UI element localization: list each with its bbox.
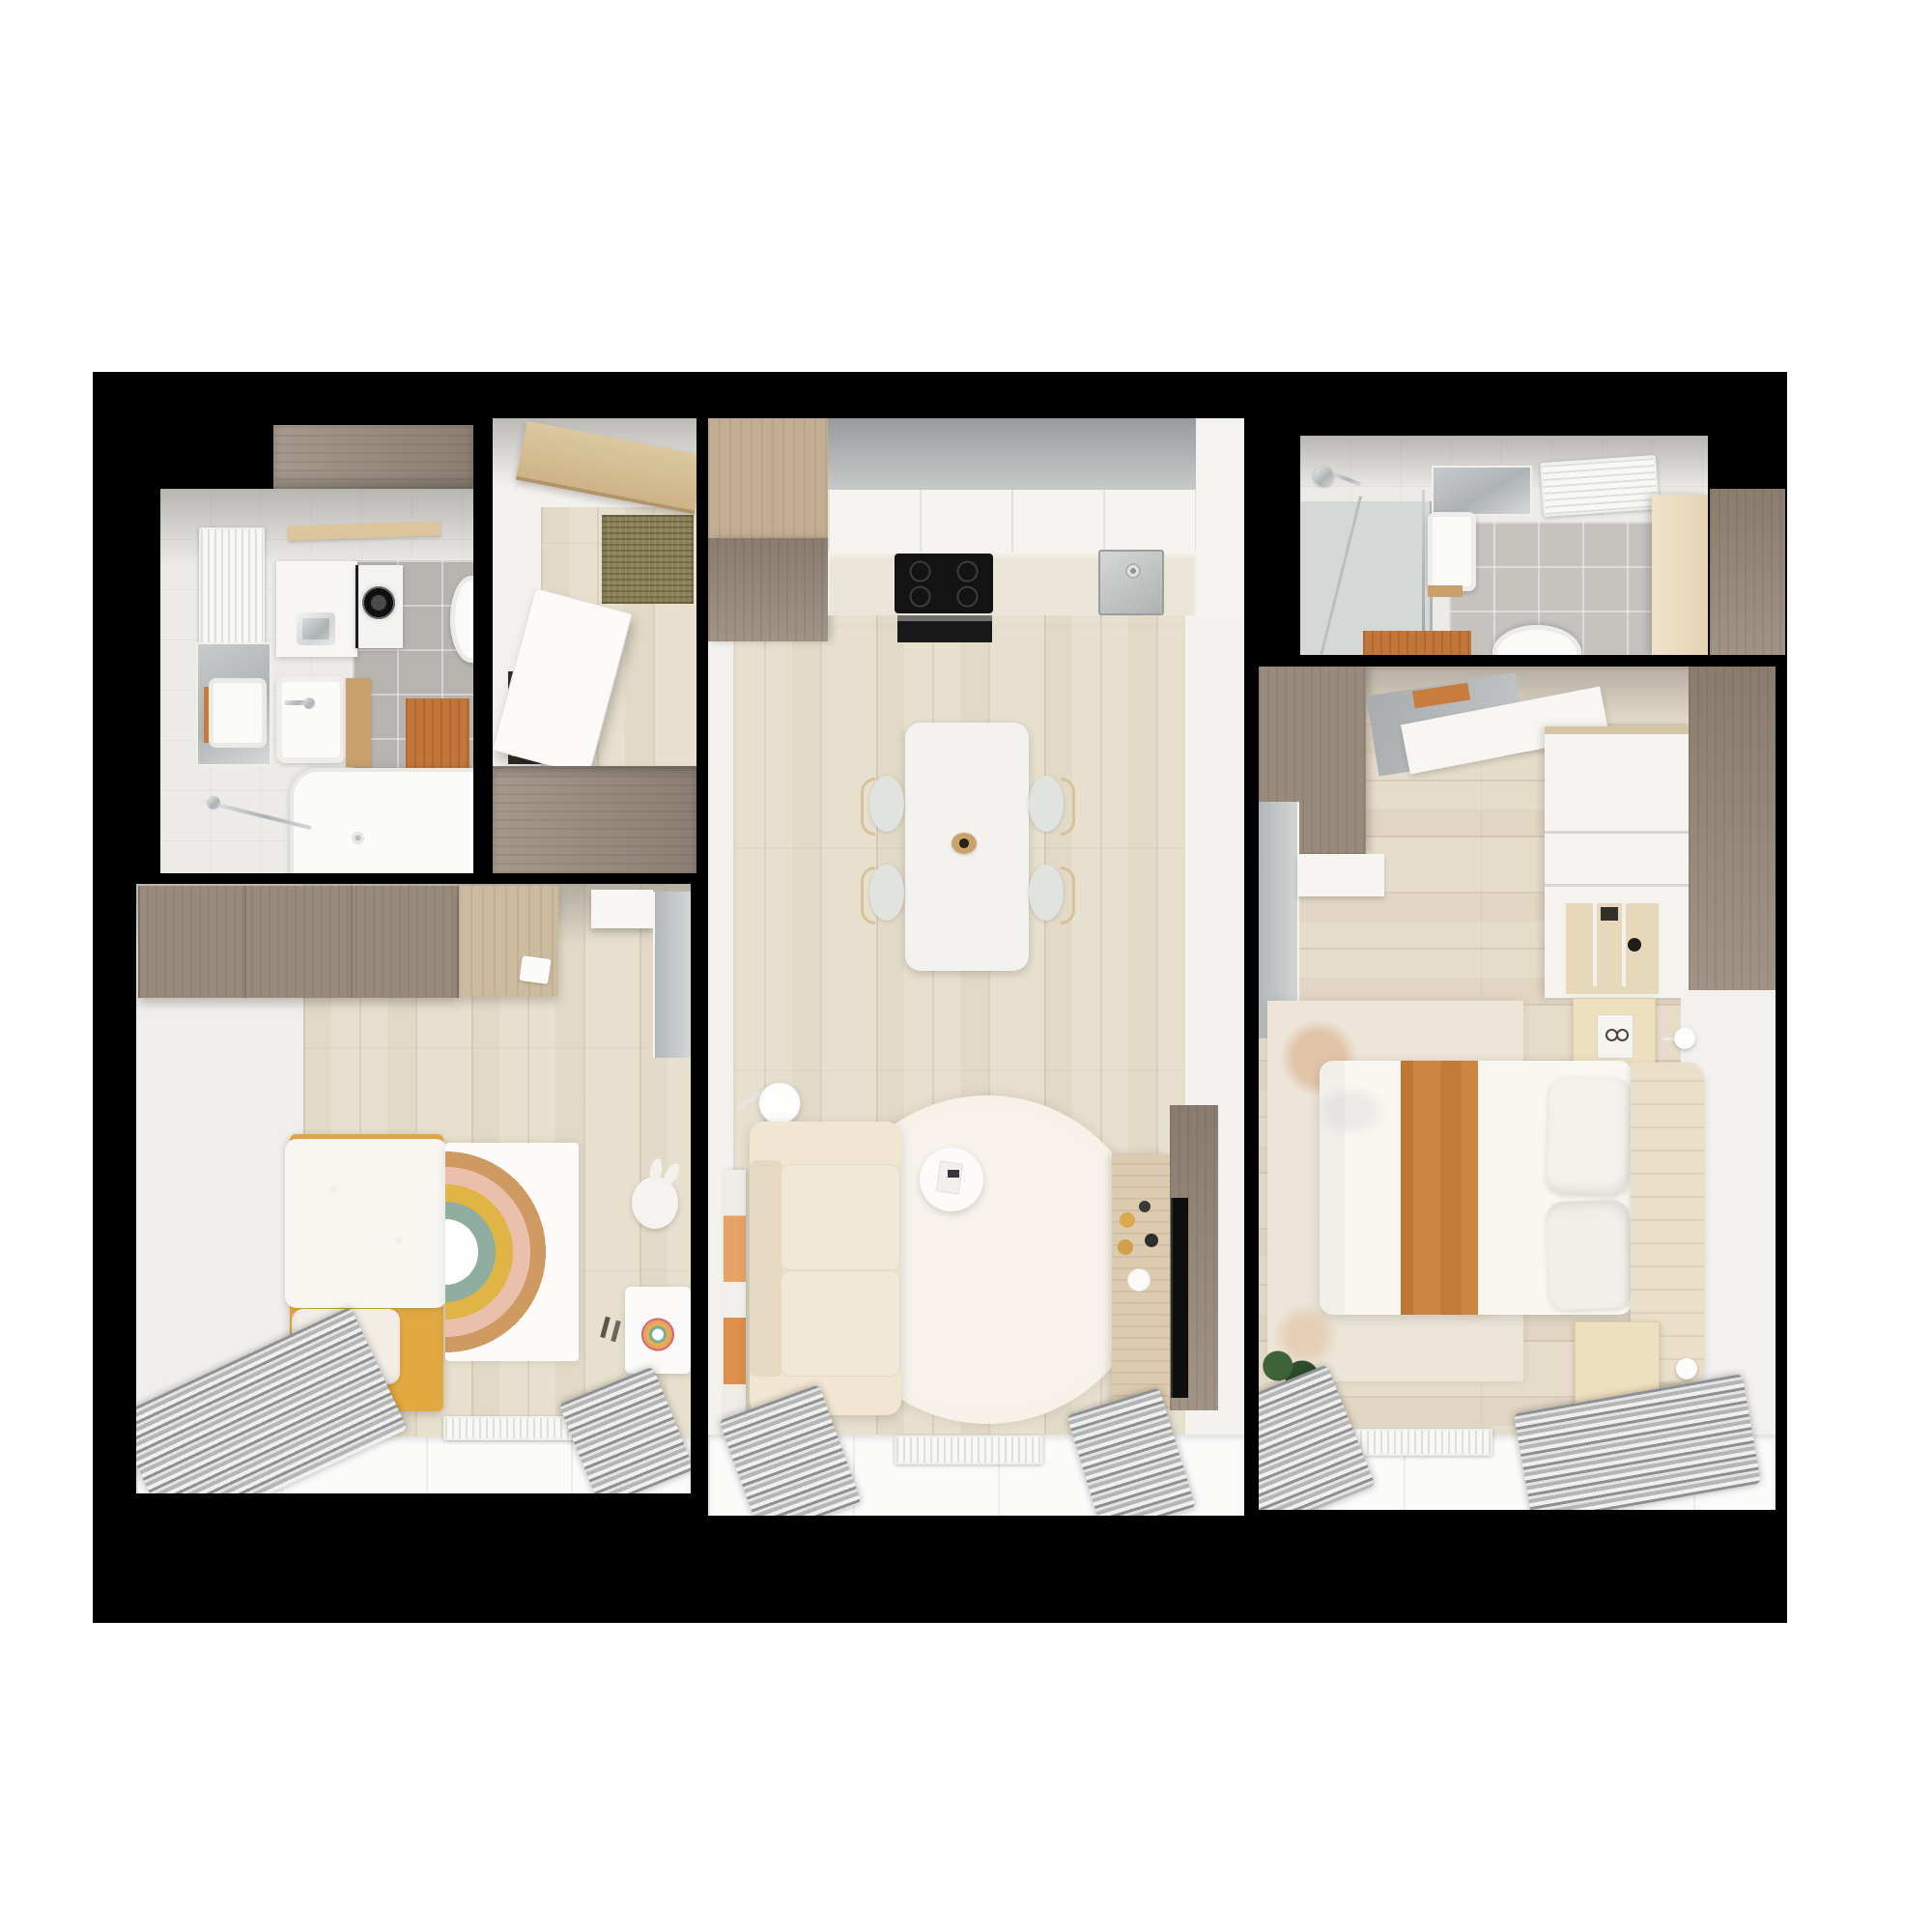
decor-dark-plate — [1145, 1234, 1158, 1247]
nightstand-book — [1597, 1014, 1634, 1059]
bedroom-wardrobe-right — [1689, 667, 1776, 990]
sink-faucet — [1125, 563, 1141, 579]
sofa-cushion — [781, 1164, 900, 1270]
oak-side-cabinet — [346, 678, 371, 767]
shelf-divider — [1622, 903, 1626, 986]
room-living-kitchen — [708, 418, 1244, 1516]
kids-play-desk — [625, 1287, 691, 1374]
wardrobe-column — [1710, 489, 1785, 655]
wall-lamp — [1674, 1028, 1695, 1049]
sofa-backrest — [750, 1160, 782, 1377]
bunny-chair-body — [632, 1177, 678, 1229]
shelf-decor — [1628, 938, 1641, 952]
wood-shelf — [288, 521, 440, 541]
glasses — [1616, 1029, 1629, 1041]
chair-back — [861, 778, 875, 836]
pillow — [1546, 1076, 1633, 1197]
room-hallway — [493, 418, 696, 873]
built-in-oven — [897, 615, 992, 642]
bathroom-left-wood-header — [273, 425, 473, 489]
kids-bed-duvet — [285, 1139, 447, 1308]
towel-radiator — [1540, 455, 1660, 517]
shelf-books — [1601, 907, 1618, 921]
room-kids — [136, 884, 691, 1493]
decor-white-vase — [1127, 1268, 1151, 1292]
curtain-right — [1514, 1374, 1761, 1510]
floor-plan-canvas — [0, 0, 1932, 1932]
white-desk — [1297, 854, 1384, 896]
kitchen-cabinet-fronts — [828, 490, 1196, 552]
bathtub — [290, 768, 473, 873]
vanity-washbasin — [276, 676, 346, 763]
closet-seam — [1545, 884, 1690, 887]
tall-cabinet-top — [708, 418, 828, 538]
kitchen-end-column — [1196, 418, 1244, 615]
induction-hob — [895, 554, 993, 613]
bedroom-closet — [1545, 726, 1690, 998]
room-bedroom — [1259, 667, 1776, 1510]
leaning-canvas-art — [724, 1170, 746, 1425]
kids-wardrobe — [138, 886, 459, 998]
room-bathroom-right — [1300, 436, 1708, 655]
room-bathroom-left — [160, 489, 473, 873]
tv-screen — [1171, 1198, 1188, 1398]
white-shelf — [591, 890, 653, 928]
chrome-fitting — [297, 612, 335, 645]
shower-head — [1314, 467, 1333, 486]
living-radiator — [895, 1435, 1043, 1464]
washbasin-reflection — [209, 678, 267, 748]
washer-drum-door — [359, 583, 398, 622]
towel-radiator — [199, 527, 265, 659]
dining-chair — [1029, 776, 1064, 832]
tall-mirror — [653, 892, 691, 1058]
bed-runner-orange — [1401, 1061, 1478, 1315]
decor-yellow-ball — [1118, 1239, 1133, 1255]
faucet-spout — [284, 700, 305, 705]
coffee-table-item — [948, 1170, 959, 1178]
rainbow-rug — [445, 1143, 579, 1361]
closet-open-shelves — [1562, 899, 1662, 998]
open-door-beige — [1652, 495, 1708, 655]
bath-mat-orange — [406, 698, 469, 770]
sofa-cushion — [781, 1270, 900, 1377]
wall-lamp — [1676, 1358, 1697, 1379]
sofa — [750, 1122, 901, 1415]
centerpiece-bowl — [952, 833, 977, 854]
towel-hook — [207, 796, 220, 810]
kitchen-upper-shadow — [828, 418, 1196, 490]
pillow — [1546, 1200, 1633, 1311]
chair-back — [1061, 778, 1075, 836]
decor-yellow-ball — [1120, 1212, 1135, 1228]
bathroom-right-mirror — [1432, 466, 1532, 516]
tall-cabinet — [708, 538, 828, 641]
chair-back — [861, 867, 875, 924]
washbasin — [1428, 512, 1476, 591]
washbasin-wood-base — [1428, 585, 1463, 597]
olive-doormat — [602, 515, 694, 604]
closet-seam — [1545, 831, 1690, 834]
hall-wardrobe-band — [493, 766, 696, 873]
decor-dark-plate — [1139, 1201, 1151, 1212]
chair-back — [1061, 867, 1075, 924]
wood-shelf-beam — [516, 421, 696, 515]
bathtub-drain — [352, 832, 364, 844]
shelf-divider — [1593, 903, 1597, 986]
tv-sideboard — [1112, 1154, 1170, 1408]
dining-chair — [1029, 865, 1064, 921]
laptop — [519, 955, 551, 984]
kitchen-sink — [1098, 550, 1164, 615]
bath-mat-orange — [1363, 631, 1471, 655]
coffee-table-magazine — [936, 1160, 963, 1194]
floor-lamp — [758, 1082, 801, 1124]
